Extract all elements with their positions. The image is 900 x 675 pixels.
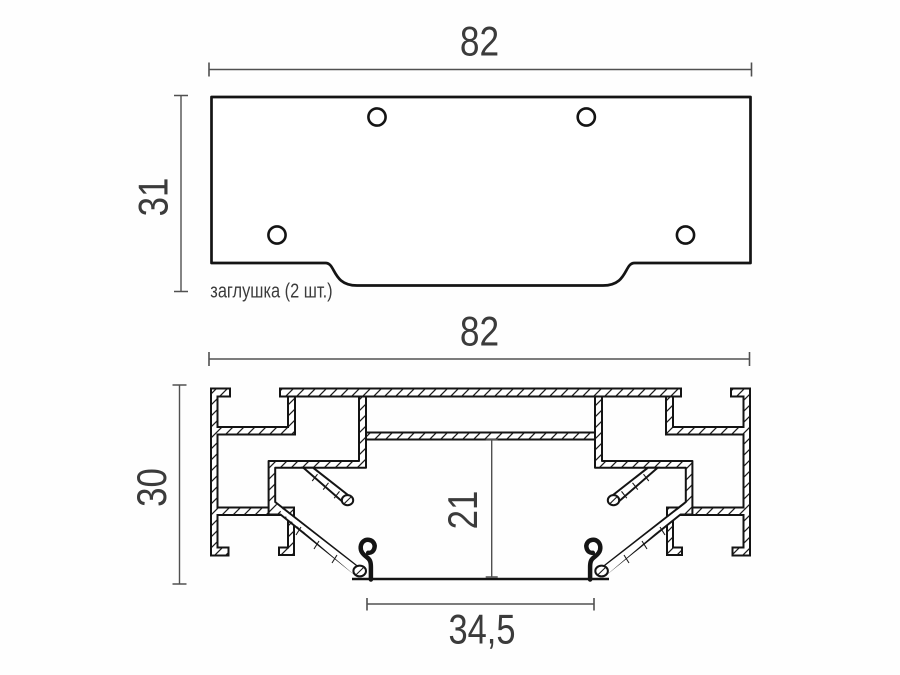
svg-text:34,5: 34,5 [448,607,515,654]
svg-text:31: 31 [131,178,178,217]
svg-text:30: 30 [129,468,176,507]
svg-text:21: 21 [440,491,487,530]
svg-text:82: 82 [460,309,499,355]
svg-text:заглушка (2 шт.): заглушка (2 шт.) [210,279,332,302]
svg-text:82: 82 [460,19,499,65]
